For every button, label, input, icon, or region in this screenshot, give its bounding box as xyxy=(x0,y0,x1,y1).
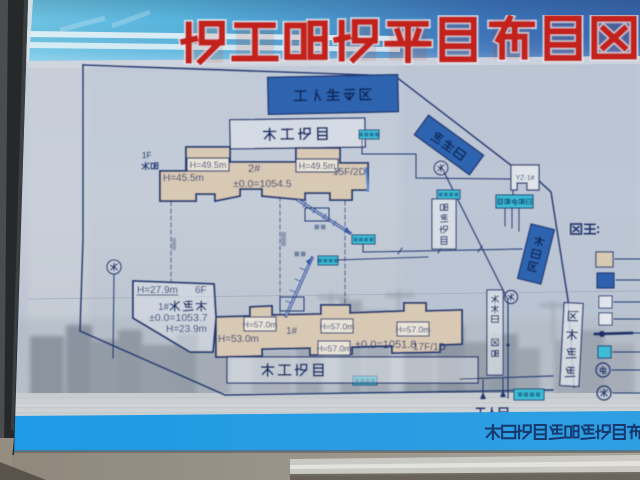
svg-text:YZ-1#: YZ-1# xyxy=(515,175,534,182)
svg-text::: : xyxy=(596,221,600,236)
svg-text:6F: 6F xyxy=(195,285,207,296)
svg-text:15F/2D: 15F/2D xyxy=(333,167,366,178)
svg-text:H=45.5m: H=45.5m xyxy=(163,173,204,184)
svg-text:2#: 2# xyxy=(248,163,261,175)
svg-text:H=49.5m: H=49.5m xyxy=(299,161,336,171)
svg-text:H=23.9m: H=23.9m xyxy=(166,324,207,335)
svg-text:H=49.5m: H=49.5m xyxy=(190,160,227,170)
svg-text:1#: 1# xyxy=(286,326,298,337)
svg-text:H=57.0m: H=57.0m xyxy=(243,320,278,330)
svg-text:H=57.0m: H=57.0m xyxy=(320,322,355,332)
svg-text:±0.0=1051.8: ±0.0=1051.8 xyxy=(355,339,416,351)
svg-text:H=57.0m: H=57.0m xyxy=(317,344,352,354)
svg-text:H=53.0m: H=53.0m xyxy=(218,334,259,345)
svg-text:17F/1D: 17F/1D xyxy=(413,342,446,353)
svg-text:H=57.0m: H=57.0m xyxy=(396,325,431,335)
svg-text:1F: 1F xyxy=(142,151,151,160)
svg-text:±0.0=1054.5: ±0.0=1054.5 xyxy=(233,178,292,190)
svg-text:H=27.9m: H=27.9m xyxy=(137,285,178,296)
svg-text:±0.0=1053.7: ±0.0=1053.7 xyxy=(149,312,208,324)
